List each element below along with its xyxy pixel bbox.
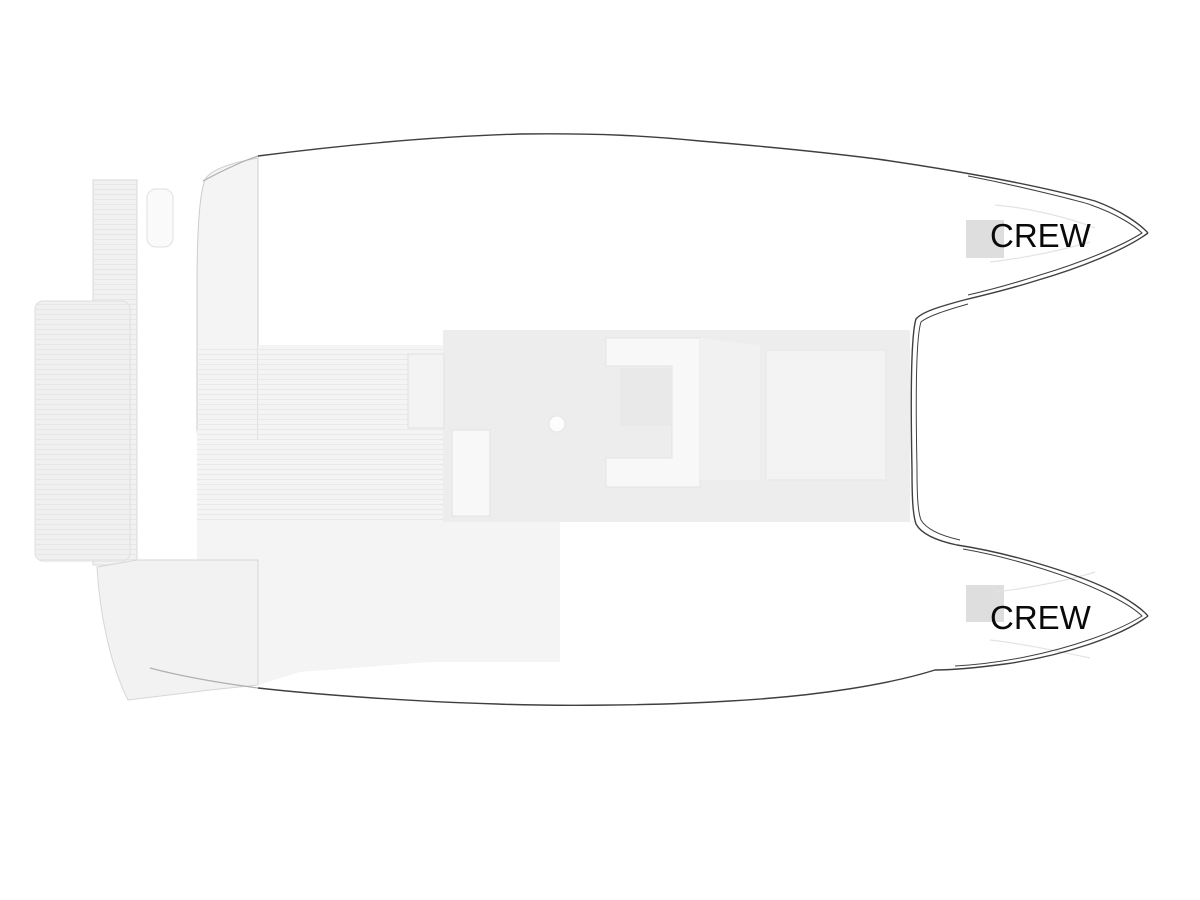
svg-text:CREW: CREW	[990, 217, 1092, 254]
svg-text:CREW: CREW	[990, 599, 1092, 636]
